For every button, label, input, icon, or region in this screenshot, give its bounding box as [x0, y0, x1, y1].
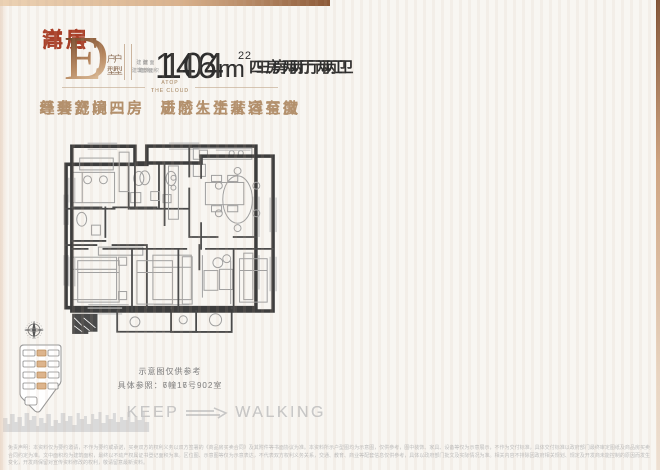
left-edge-strip	[0, 0, 8, 470]
area-unit: m	[218, 59, 238, 81]
area-value: 146	[155, 50, 218, 82]
top-gradient-band-right	[0, 0, 330, 6]
keep-walking-slogan: KEEP WALKING	[127, 404, 326, 422]
unit-type-label: 户型	[105, 54, 118, 80]
compass-icon	[23, 319, 45, 341]
tagline: 尊奢宽境四房进阶人生从容有度	[20, 97, 320, 118]
legal-disclaimer: 免责声明：本资料仅为要约邀请，不作为要约或承诺，买卖双方的权利义务以双方签署的《…	[8, 445, 650, 468]
arrow-icon	[184, 407, 230, 419]
brand-text: ATOP THE CLOUD	[151, 80, 189, 95]
header-divider	[124, 44, 125, 80]
right-edge-strip	[656, 0, 660, 470]
area-superscript: 2	[238, 51, 244, 62]
brand-divider-row: ATOP THE CLOUD	[62, 80, 278, 95]
plan-caption: 示意图仅供参考 具体参照：6幢17号902室	[65, 365, 275, 394]
floor-plan-e	[58, 136, 280, 338]
furniture	[77, 152, 267, 327]
unit-letter: E	[64, 34, 102, 84]
area-prefix: 建 面 建筑面积	[132, 59, 152, 75]
room-layout: 四房两厅两卫	[249, 56, 348, 77]
panel-unit-e: 洋房 E 户型 建 面 建筑面积 146 m 2 四房两厅两卫 ATOP THE…	[0, 0, 330, 444]
unit-header: E 户型 建 面 建筑面积 146 m 2 四房两厅两卫	[64, 30, 348, 84]
